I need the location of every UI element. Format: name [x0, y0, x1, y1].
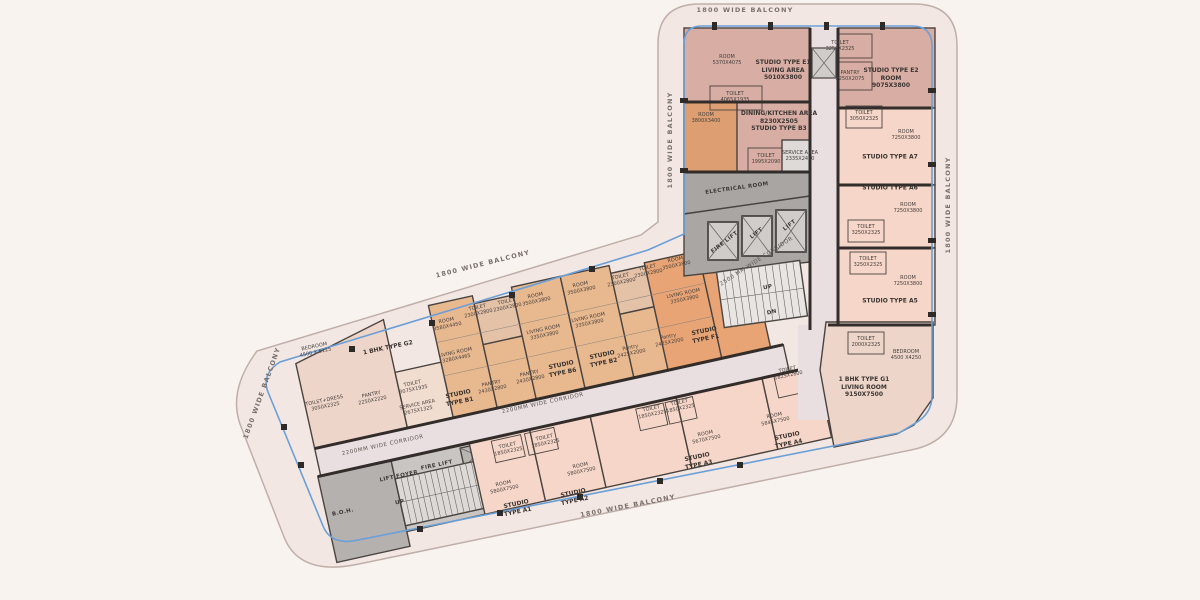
unit-e1-fill	[684, 28, 810, 102]
b3-room-fill	[684, 102, 737, 172]
unit-a6-fill	[838, 185, 935, 248]
floor-plan-canvas: 1800 WIDE BALCONY 1800 WIDE BALCONY 1800…	[0, 0, 1200, 600]
unit-e2-fill	[838, 28, 935, 108]
floor-plan-drawing	[0, 0, 1200, 600]
stairs-upper	[717, 260, 808, 327]
unit-a7-fill	[838, 108, 935, 185]
b3-service-fill	[782, 140, 810, 172]
unit-a5-fill	[838, 248, 935, 325]
